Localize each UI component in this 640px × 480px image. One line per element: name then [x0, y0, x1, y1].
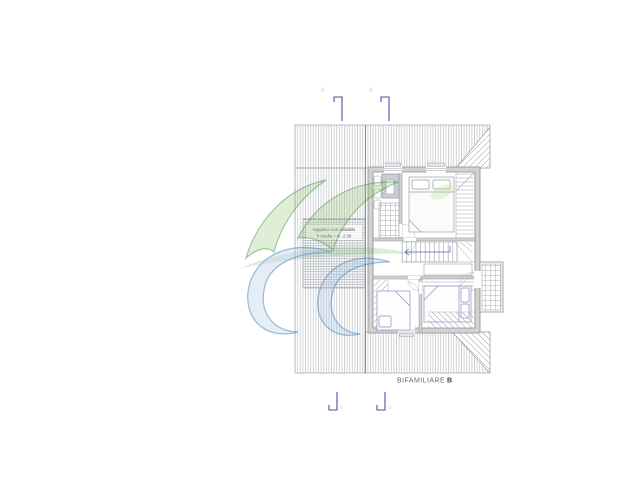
plan-title-group: BIFAMILIARE B [397, 378, 452, 385]
stair-winders [455, 242, 472, 262]
section-cut-icon-top-left [334, 97, 342, 121]
wall-bedroom-stairs [373, 238, 475, 241]
bedroom-lower-left [374, 280, 410, 332]
bedroom-lower-right [423, 280, 475, 329]
window-top-2 [426, 163, 446, 173]
plan-title-suffix: B [447, 378, 452, 385]
wall-stairs-rooms [373, 276, 475, 279]
section-letter-top-right: d [369, 87, 373, 94]
section-letter-bottom-left: b [340, 405, 343, 411]
section-cut-icon-bottom-left [329, 392, 337, 410]
roof-top-band [295, 125, 490, 168]
section-cut-icon-top-right [381, 97, 389, 121]
plan-title: BIFAMILIARE [397, 378, 445, 385]
section-letter-top-left: b [321, 87, 325, 94]
bedroom-upper [409, 172, 475, 238]
bed-lower-left [377, 291, 410, 330]
floorplan-svg: soppalco non abitabile h media = m. 2.00 [0, 0, 640, 480]
floorplan-canvas: soppalco non abitabile h media = m. 2.00 [0, 0, 640, 480]
staircase [402, 242, 475, 275]
slope-hatch-upper-right [456, 173, 475, 238]
closet [379, 203, 399, 238]
stair-landing [424, 264, 472, 275]
section-cut-icon-bottom-right [377, 392, 385, 410]
slope-hatch-lower-right-bottom [428, 312, 475, 329]
section-letter-bottom-right: d [388, 405, 391, 411]
window-top-1 [384, 163, 402, 173]
